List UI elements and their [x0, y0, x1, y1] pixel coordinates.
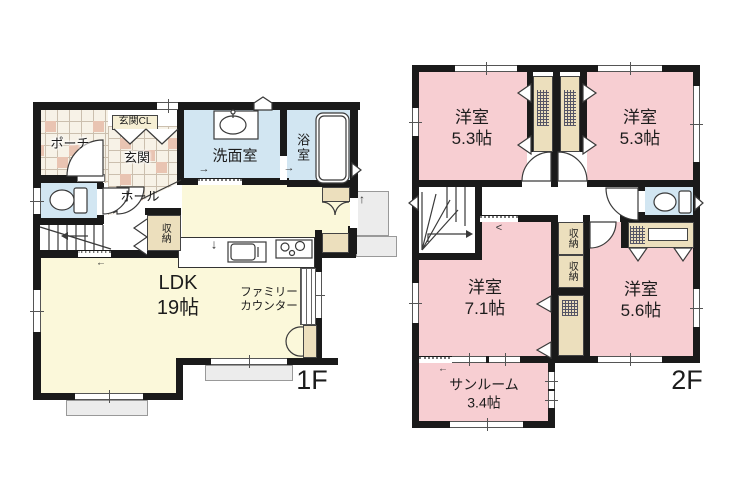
tile-accent: [45, 121, 56, 132]
wall-segment: [33, 102, 360, 110]
label-ldk: LDK 19帖: [157, 271, 199, 321]
wall-segment: [33, 218, 103, 225]
side-door-opening: [350, 198, 358, 228]
sunroom-opening: [419, 357, 454, 363]
window: [157, 102, 178, 110]
sunroom-arrow-icon: ←: [438, 364, 448, 375]
tile-accent: [57, 157, 68, 168]
wall-segment: [583, 295, 590, 363]
wall-segment: [583, 215, 590, 295]
window: [693, 86, 700, 162]
tile-accent: [120, 138, 131, 149]
door-opening: [522, 180, 551, 187]
window: [450, 421, 523, 428]
wall-segment: [551, 295, 558, 363]
wall-segment: [177, 109, 184, 183]
wall-segment: [145, 208, 181, 215]
deck-steps: [356, 236, 397, 257]
toilet-door-opening: [97, 189, 104, 215]
side-entry-arrow-icon: ↑: [359, 192, 365, 206]
room-ldk: [40, 358, 176, 393]
stairs-2f-icon: [422, 187, 473, 250]
closet-hatch: [564, 90, 576, 126]
closet-hatch: [630, 226, 645, 244]
wall-segment: [621, 222, 628, 248]
window: [412, 283, 419, 323]
window: [452, 356, 486, 363]
label-bedroom-se: 洋室 5.6帖: [621, 279, 662, 322]
bedroom-ne-door-arc-icon: [558, 152, 587, 181]
label-bedroom-ne: 洋室 5.3帖: [620, 107, 661, 150]
window: [693, 289, 700, 327]
window: [315, 272, 322, 318]
window: [211, 358, 287, 365]
label-storage-b: 収納: [565, 261, 578, 281]
wall-segment: [551, 288, 590, 295]
wall-segment: [348, 226, 357, 254]
label-bedroom-nw: 洋室 5.3帖: [452, 107, 493, 150]
family-counter: [300, 268, 316, 325]
window: [598, 356, 662, 363]
label-storage-1f: 収納: [158, 223, 171, 243]
entrance-step: [77, 174, 105, 182]
window: [455, 65, 517, 72]
label-washroom: 洗面室: [212, 148, 257, 167]
window: [548, 372, 555, 389]
room-washroom: [182, 109, 285, 180]
window-sill: [66, 400, 148, 416]
wall-segment: [419, 253, 482, 260]
room-bedroom-sw: [482, 222, 551, 260]
opening-arrow-icon: ←: [96, 258, 106, 269]
window: [33, 188, 41, 214]
closet-mid-right: [322, 233, 349, 253]
door-opening: [638, 191, 645, 212]
closet-upper-right: [322, 187, 350, 202]
wall-segment: [580, 72, 587, 152]
window: [412, 108, 419, 136]
stairs-1f: [40, 225, 112, 250]
label-entrance: 玄関: [124, 150, 150, 166]
window: [75, 393, 143, 400]
wall-segment: [551, 150, 558, 187]
wall-segment: [287, 180, 358, 187]
hall-opening: [78, 251, 111, 257]
kitchen-counter: [178, 237, 315, 268]
room-toilet-2f: [645, 187, 693, 215]
window: [33, 290, 41, 332]
floor1-label: 1F: [296, 364, 328, 398]
closet-hatch: [562, 300, 578, 316]
opening-chevron-icon: <: [496, 222, 502, 234]
label-storage-a: 収納: [565, 228, 578, 248]
closet-hatch: [537, 90, 549, 126]
entry-arrow-icon: ↓: [211, 237, 218, 252]
sliding-door-opening: [198, 179, 242, 185]
closet-ldk: [303, 325, 317, 358]
label-hall: ホール: [120, 189, 159, 205]
label-family-counter: ファミリー カウンター: [240, 286, 298, 315]
wall-segment: [553, 72, 560, 152]
room-toilet-1f: [40, 183, 97, 218]
door-opening: [558, 180, 587, 187]
tile-accent: [93, 121, 104, 132]
floor2-label: 2F: [671, 364, 703, 398]
label-entrance-closet: 玄関CL: [119, 116, 152, 129]
window: [548, 391, 555, 408]
label-bedroom-sw: 洋室 7.1帖: [465, 277, 506, 320]
tile-accent: [156, 162, 167, 173]
window: [489, 356, 520, 363]
label-sunroom: サンルーム 3.4帖: [449, 377, 519, 412]
label-porch: ポーチ: [50, 136, 89, 152]
door-opening: [590, 215, 618, 222]
wall-segment: [620, 215, 700, 222]
slide-door-arrow-icon: →: [199, 163, 210, 175]
tile-accent: [120, 174, 131, 185]
closet-shelf: [648, 228, 688, 241]
window: [598, 65, 662, 72]
wall-segment: [551, 215, 558, 295]
floor-plan-image: ポーチ 玄関CL 玄関 ホール 洗面室 浴室 収納 LDK 19帖 ファミリー …: [0, 0, 735, 500]
label-bathroom: 浴室: [294, 133, 310, 163]
slide-door-arrow-icon: →: [284, 162, 295, 174]
